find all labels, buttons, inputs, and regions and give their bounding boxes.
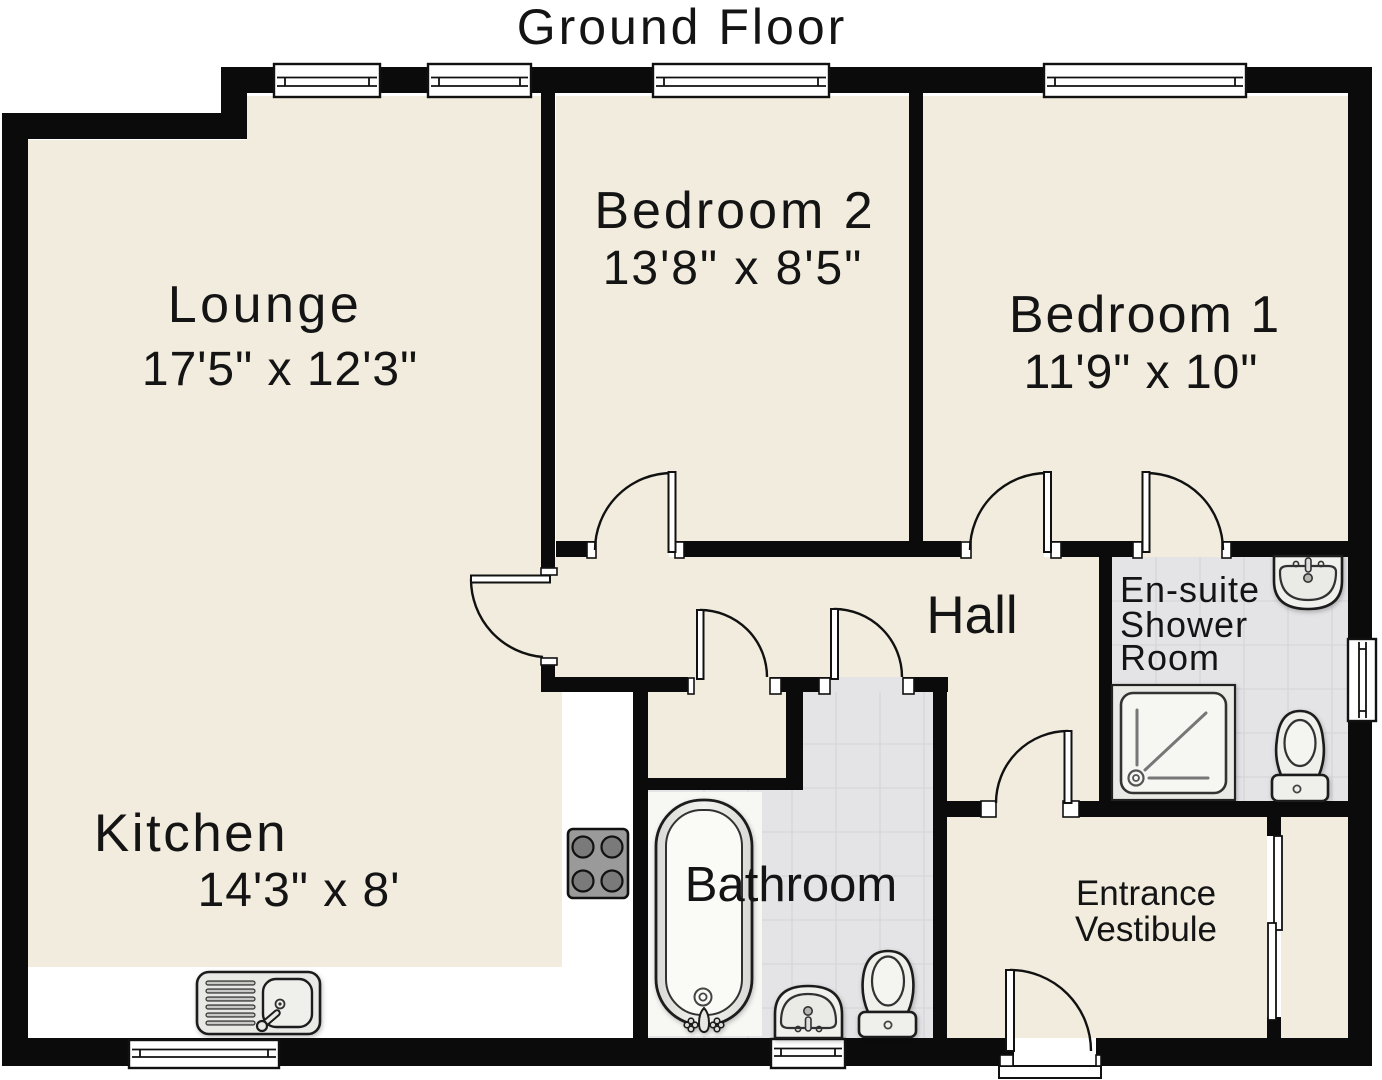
svg-text:Bedroom 1: Bedroom 1 [1009,286,1281,344]
svg-text:13'8" x 8'5": 13'8" x 8'5" [603,242,864,295]
svg-text:Hall: Hall [926,586,1017,645]
svg-text:Bathroom: Bathroom [685,858,897,912]
svg-text:Kitchen: Kitchen [94,804,288,863]
svg-text:17'5" x 12'3": 17'5" x 12'3" [142,343,418,396]
svg-text:11'9" x 10": 11'9" x 10" [1024,346,1259,399]
svg-text:Vestibule: Vestibule [1075,910,1217,949]
svg-text:Bedroom 2: Bedroom 2 [594,182,875,240]
svg-text:Entrance: Entrance [1076,874,1216,913]
svg-text:Lounge: Lounge [168,276,363,334]
svg-text:Ground Floor: Ground Floor [517,0,848,55]
svg-text:Room: Room [1120,637,1220,678]
svg-text:14'3" x 8': 14'3" x 8' [198,864,401,917]
